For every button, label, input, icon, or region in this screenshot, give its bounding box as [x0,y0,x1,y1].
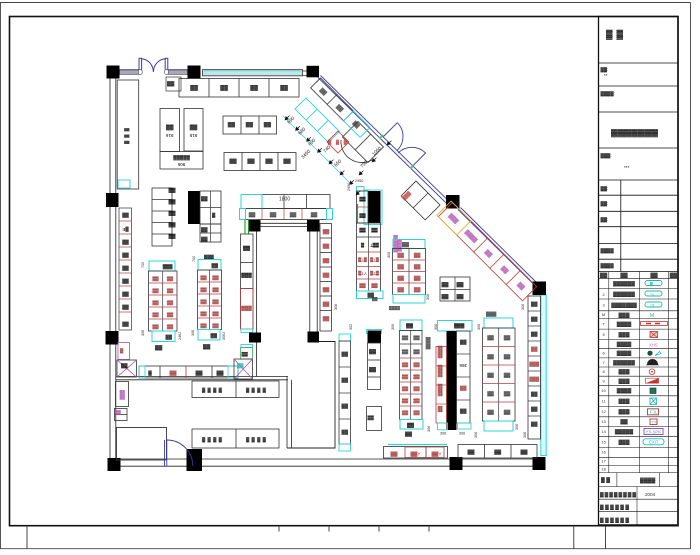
svg-text:▓▓▓: ▓▓▓ [619,378,630,385]
svg-text:2950: 2950 [347,183,351,191]
svg-text:▓▓: ▓▓ [170,370,177,377]
svg-text:915: 915 [189,133,197,138]
svg-text:▓▓: ▓▓ [243,245,250,252]
svg-text:▓▓: ▓▓ [468,449,475,456]
svg-text:FJL: FJL [650,410,658,415]
svg-text:▓▓▓▓: ▓▓▓▓ [640,477,655,484]
svg-text:▓▓▓: ▓▓▓ [453,322,464,329]
svg-text:▓▓: ▓▓ [168,187,175,194]
svg-text:3062: 3062 [222,332,226,340]
svg-text:▓▓: ▓▓ [168,210,175,217]
svg-text:▓▓▓▓▓: ▓▓▓▓▓ [615,428,634,435]
svg-text:▓▓▓▓▓▓: ▓▓▓▓▓▓ [613,359,635,366]
svg-text:▓▓: ▓▓ [203,343,211,350]
svg-text:▓▓: ▓▓ [369,366,376,373]
svg-text:▓▓▓▓▓▓▓▓: ▓▓▓▓▓▓▓▓ [600,491,636,498]
svg-text:▓▓: ▓▓ [620,272,628,279]
svg-text:905: 905 [177,162,185,167]
svg-text:▓▓▓▓▓▓▓: ▓▓▓▓▓▓▓ [611,128,659,137]
svg-text:▓▓: ▓▓ [369,348,376,355]
svg-text:▓▓▓: ▓▓▓ [486,311,497,318]
svg-text:▓▓: ▓▓ [457,281,464,288]
svg-text:▓▓: ▓▓ [190,124,198,131]
svg-text:▓▓: ▓▓ [670,272,678,279]
svg-text:356: 356 [459,363,467,368]
svg-text:▓▓: ▓▓ [391,451,398,458]
svg-text:▓▓: ▓▓ [155,344,163,351]
svg-text:▓▓: ▓▓ [229,158,237,165]
svg-text:=5: =5 [650,304,654,308]
svg-text:▓▓: ▓▓ [263,122,271,129]
svg-text:▓▓: ▓▓ [227,122,235,129]
svg-text:17: 17 [601,459,606,464]
svg-text:14: 14 [601,429,606,434]
svg-text:▓▓▓▓▓▓▓: ▓▓▓▓▓▓▓ [611,302,637,309]
svg-text:▓▓: ▓▓ [494,449,501,456]
svg-text:16: 16 [601,450,606,455]
svg-text:2462: 2462 [178,332,182,340]
svg-text:700: 700 [192,256,196,262]
svg-text:▓▓▓: ▓▓▓ [241,305,252,312]
svg-text:▓▓▓▓: ▓▓▓▓ [617,321,632,328]
svg-text:2950: 2950 [355,179,363,183]
svg-text:▓▓: ▓▓ [245,122,253,129]
svg-text:306: 306 [459,432,465,436]
svg-text:▓▓: ▓▓ [442,293,449,300]
svg-text:13: 13 [601,419,606,424]
svg-text:▓▓: ▓▓ [620,418,628,425]
svg-text:12: 12 [601,409,606,414]
svg-text:▓▓: ▓▓ [190,85,198,92]
svg-text:▓▓▓: ▓▓▓ [241,272,252,279]
svg-text:306: 306 [334,304,338,310]
svg-text:▓▓▓▓▓▓: ▓▓▓▓▓▓ [613,291,635,298]
svg-text:▓▓▓▓▓▓: ▓▓▓▓▓▓ [600,516,629,523]
svg-text:306: 306 [515,424,519,430]
svg-text:▓▓: ▓▓ [250,85,258,92]
svg-text:***: *** [624,165,630,170]
svg-text:306: 306 [440,432,446,436]
svg-text:306: 306 [426,294,430,300]
svg-text:▓ ▓: ▓ ▓ [601,477,610,484]
svg-text:▓▓: ▓▓ [196,370,203,377]
svg-text:▓▓: ▓▓ [402,241,409,248]
svg-text:2004: 2004 [645,492,656,497]
svg-text:▓▓: ▓▓ [457,293,464,300]
svg-text:▓▓: ▓▓ [650,272,658,279]
svg-text:700: 700 [141,262,145,268]
svg-text:1800: 1800 [279,197,290,203]
svg-text:306: 306 [521,304,525,310]
svg-text:▓▓: ▓▓ [217,370,224,377]
svg-text:▓▓: ▓▓ [442,281,449,288]
svg-text:▓▓: ▓▓ [600,272,608,279]
svg-text:15: 15 [601,440,606,445]
svg-text:▓▓: ▓▓ [247,158,255,165]
svg-text:306: 306 [523,432,527,438]
svg-text:▓▓▓: ▓▓▓ [619,368,630,375]
svg-text:YX: YX [652,420,658,425]
svg-text:▓▓: ▓▓ [168,233,175,240]
svg-text:▓▓▓: ▓▓▓ [619,439,630,446]
svg-text:▓▓Y: ▓▓Y [431,451,442,458]
svg-text:=o: =o [650,293,654,297]
svg-text:▓▓▓▓▓▓: ▓▓▓▓▓▓ [600,504,629,511]
svg-text:▓▓▓: ▓▓▓ [619,312,630,319]
svg-text:306: 306 [387,252,391,258]
svg-text:▓▓: ▓▓ [168,222,175,229]
svg-text:306: 306 [474,432,478,438]
svg-text:EXIT: EXIT [649,440,659,445]
svg-text:306: 306 [391,324,395,330]
svg-text:▓▓▓▓: ▓▓▓▓ [617,341,632,348]
svg-text:▓▓: ▓▓ [265,158,273,165]
svg-text:302: 302 [349,324,353,330]
svg-text:▓▓▓: ▓▓▓ [619,408,630,415]
svg-text:▓▓Y: ▓▓Y [410,451,421,458]
svg-text:YX-SPK: YX-SPK [646,429,662,434]
svg-text:▓: ▓ [148,370,152,377]
svg-text:306: 306 [477,324,481,330]
svg-text:▓▓▓▓: ▓▓▓▓ [617,387,632,394]
svg-text:M: M [602,312,605,317]
svg-text:18: 18 [601,467,606,472]
svg-text:916: 916 [165,133,173,138]
svg-text:▓▓▓▓: ▓▓▓▓ [617,350,632,357]
svg-text:M: M [650,313,654,319]
svg-text:10: 10 [601,388,606,393]
svg-text:▓▓: ▓▓ [167,80,175,87]
svg-text:▓▓: ▓▓ [406,323,413,330]
svg-text:306: 306 [434,324,438,330]
svg-text:▓▓: ▓▓ [220,85,228,92]
svg-text:▓▓: ▓▓ [407,422,414,429]
svg-text:306: 306 [141,330,145,336]
svg-text:XHS: XHS [649,343,658,348]
svg-text:▓▓: ▓▓ [168,199,175,206]
svg-text:▓▓▓: ▓▓▓ [619,331,630,338]
svg-text:306: 306 [191,330,195,336]
svg-text:▓▓▓▓▓▓: ▓▓▓▓▓▓ [613,280,635,287]
svg-text:**: ** [604,73,608,78]
svg-text:▓▓: ▓▓ [166,124,174,131]
svg-text:306: 306 [427,426,431,432]
svg-text:▓▓: ▓▓ [521,449,528,456]
svg-text:▓▓: ▓▓ [283,158,291,165]
svg-text:▓▓: ▓▓ [280,85,288,92]
svg-text:▓▓▓: ▓▓▓ [619,398,630,405]
svg-text:▓▓: ▓▓ [405,431,412,438]
